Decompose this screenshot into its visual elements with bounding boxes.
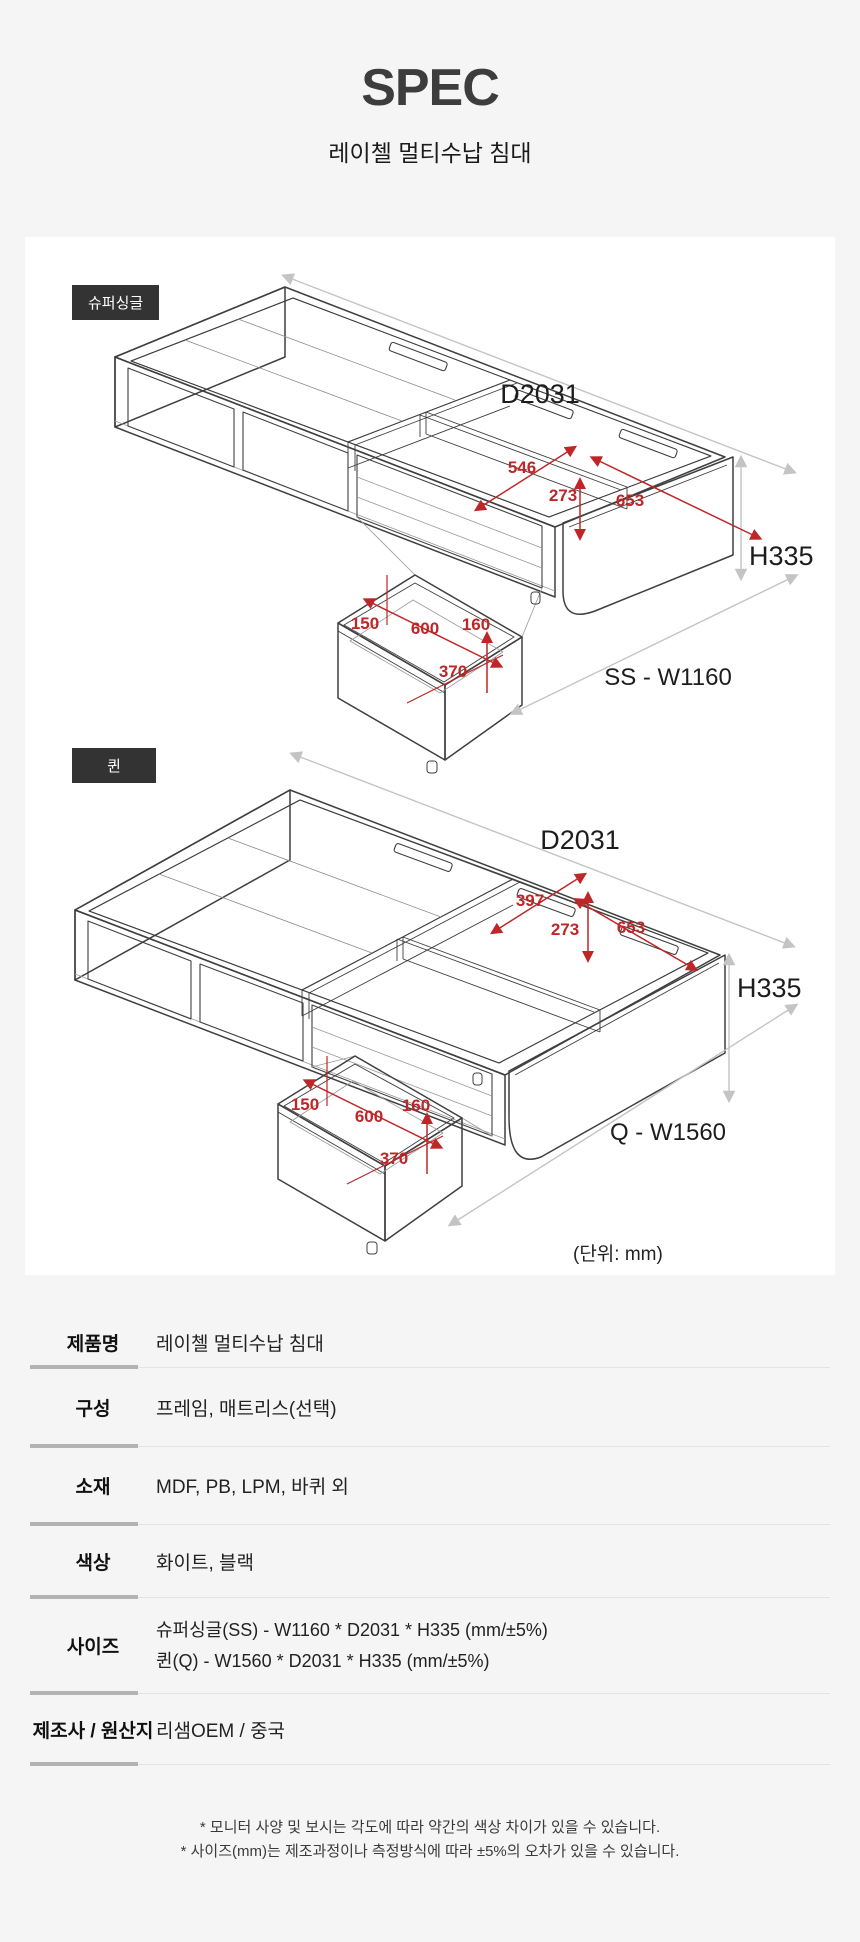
page-title: SPEC <box>0 58 860 118</box>
row-value: 리샘OEM / 중국 <box>156 1716 285 1743</box>
caster-wheel <box>531 592 540 604</box>
ss-depth-label: D2031 <box>500 379 580 409</box>
size-badge-queen: 퀸 <box>72 748 156 783</box>
row-value: 레이첼 멀티수납 침대 <box>156 1329 324 1356</box>
dimension-arrows-gray <box>287 277 793 712</box>
row-value: 화이트, 블랙 <box>156 1548 254 1575</box>
row-label: 제조사 / 원산지 <box>30 1716 156 1743</box>
table-row-material: 소재 MDF, PB, LPM, 바퀴 외 <box>30 1447 830 1525</box>
row-label: 소재 <box>30 1472 156 1499</box>
row-value: 프레임, 매트리스(선택) <box>156 1394 337 1421</box>
bed-line-drawing <box>75 790 725 1254</box>
footnotes: * 모니터 사양 및 보시는 각도에 따라 약간의 색상 차이가 있을 수 있습… <box>0 1816 860 1864</box>
unit-note: (단위: mm) <box>573 1239 663 1266</box>
row-label: 제품명 <box>30 1329 156 1356</box>
q-width-label: Q - W1560 <box>610 1119 726 1146</box>
ss-drawer-600: 600 <box>411 619 439 638</box>
ss-drawer-370: 370 <box>439 662 467 681</box>
table-row-manufacturer: 제조사 / 원산지 리샘OEM / 중국 <box>30 1694 830 1765</box>
footnote-size: * 사이즈(mm)는 제조과정이나 측정방식에 따라 ±5%의 오차가 있을 수… <box>0 1840 860 1864</box>
table-row-product-name: 제품명 레이첼 멀티수납 침대 <box>30 1317 830 1368</box>
diagram-panel: D2031 H335 SS - W1160 546 273 653 150 60… <box>25 237 835 1275</box>
q-drawer-150: 150 <box>291 1095 319 1114</box>
caster-wheel <box>367 1242 377 1254</box>
bed-line-drawing <box>115 287 733 773</box>
ss-height-label: H335 <box>749 541 814 571</box>
row-value: MDF, PB, LPM, 바퀴 외 <box>156 1472 349 1499</box>
q-comp-653: 653 <box>617 918 645 937</box>
row-label: 사이즈 <box>30 1632 156 1659</box>
ss-comp-273: 273 <box>549 486 577 505</box>
table-row-color: 색상 화이트, 블랙 <box>30 1525 830 1598</box>
q-drawer-370: 370 <box>380 1149 408 1168</box>
queen-diagram: D2031 H335 Q - W1560 397 273 653 150 600… <box>25 745 835 1270</box>
super-single-diagram: D2031 H335 SS - W1160 546 273 653 150 60… <box>35 245 835 775</box>
q-drawer-600: 600 <box>355 1107 383 1126</box>
q-comp-397: 397 <box>516 891 544 910</box>
q-comp-273: 273 <box>551 920 579 939</box>
q-depth-label: D2031 <box>540 825 620 855</box>
footnote-color: * 모니터 사양 및 보시는 각도에 따라 약간의 색상 차이가 있을 수 있습… <box>0 1816 860 1840</box>
size-badge-super-single: 슈퍼싱글 <box>72 285 159 320</box>
ss-drawer-150: 150 <box>351 614 379 633</box>
handle-slot <box>393 843 452 872</box>
spec-table: 제품명 레이첼 멀티수납 침대 구성 프레임, 매트리스(선택) 소재 MDF,… <box>30 1317 830 1765</box>
table-row-composition: 구성 프레임, 매트리스(선택) <box>30 1368 830 1447</box>
ss-drawer-160: 160 <box>462 615 490 634</box>
ss-comp-546: 546 <box>508 458 536 477</box>
ss-width-label: SS - W1160 <box>604 664 732 691</box>
table-row-size: 사이즈 슈퍼싱글(SS) - W1160 * D2031 * H335 (mm/… <box>30 1598 830 1694</box>
size-line-queen: 퀸(Q) - W1560 * D2031 * H335 (mm/±5%) <box>156 1646 548 1677</box>
spec-page: SPEC 레이첼 멀티수납 침대 <box>0 0 860 1942</box>
size-line-super-single: 슈퍼싱글(SS) - W1160 * D2031 * H335 (mm/±5%) <box>156 1615 548 1646</box>
ss-comp-653: 653 <box>616 491 644 510</box>
row-value: 슈퍼싱글(SS) - W1160 * D2031 * H335 (mm/±5%)… <box>156 1615 548 1676</box>
q-height-label: H335 <box>737 973 802 1003</box>
caster-wheel <box>473 1073 482 1085</box>
row-label: 구성 <box>30 1394 156 1421</box>
q-drawer-160: 160 <box>402 1096 430 1115</box>
row-label: 색상 <box>30 1548 156 1575</box>
handle-slot <box>619 429 678 459</box>
page-subtitle: 레이첼 멀티수납 침대 <box>0 134 860 168</box>
